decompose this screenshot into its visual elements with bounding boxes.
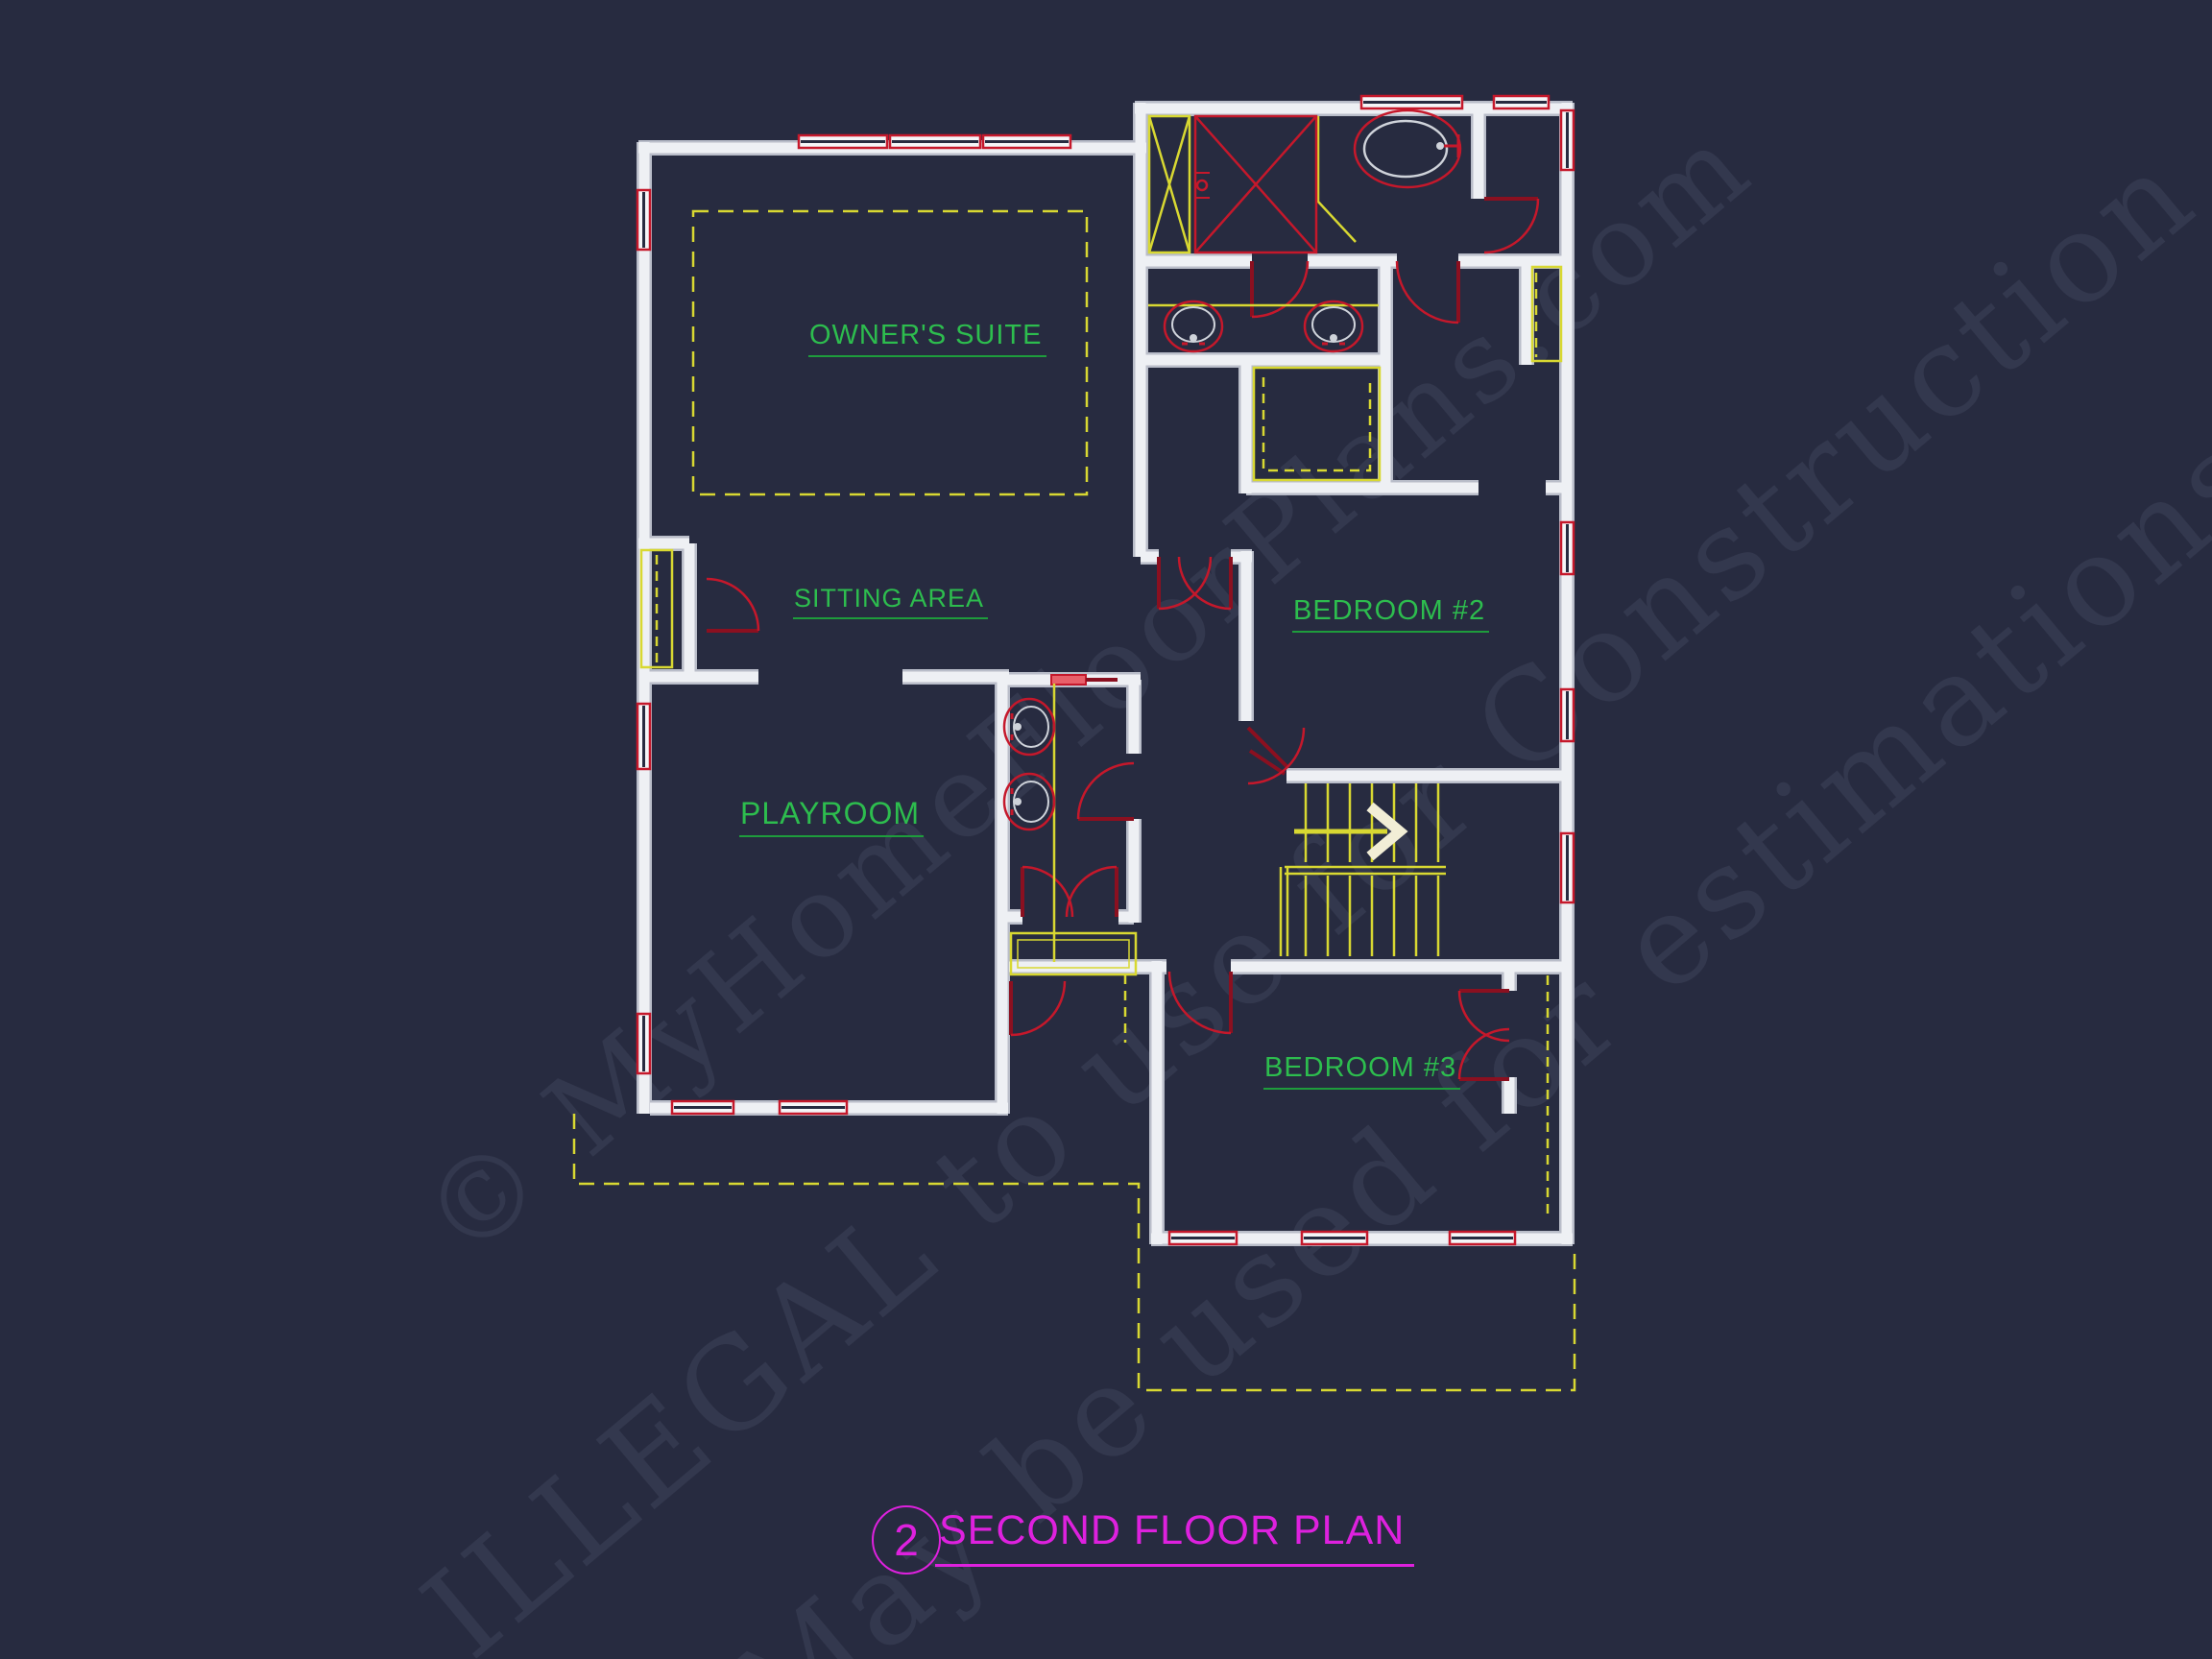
door-arc-water-closet xyxy=(1484,199,1538,252)
wic-shelf-dashed xyxy=(1263,377,1370,470)
floorplan-drawing xyxy=(0,0,2212,1659)
room-label-bedroom-2: BEDROOM #2 xyxy=(1292,595,1489,633)
bathtub-icon xyxy=(1355,110,1461,187)
bath-sink-icon xyxy=(1004,774,1054,829)
vanity-sink-icon xyxy=(1165,301,1222,351)
sheet-number: 2 xyxy=(894,1514,919,1566)
walk-in-closet-box xyxy=(1254,368,1380,480)
sheet-title-block: 2 SECOND FLOOR PLAN xyxy=(872,1505,1414,1575)
floorplan-sheet: © MyHomeFloorPlans.com ILLEGAL to use fo… xyxy=(0,0,2212,1659)
room-label-sitting-area: SITTING AREA xyxy=(793,584,988,619)
window-icon xyxy=(1561,522,1574,574)
window-icon xyxy=(1450,1232,1515,1244)
window-icon xyxy=(1302,1232,1367,1244)
door-arc-bedroom3 xyxy=(1169,972,1231,1033)
dashed-outline-layer xyxy=(574,211,1575,1390)
window-icon xyxy=(780,1101,847,1114)
stairs xyxy=(1281,783,1446,956)
window-icon xyxy=(672,1101,733,1114)
window-icon xyxy=(1561,833,1574,902)
door-arc-sitting-closet xyxy=(707,579,758,631)
window-icon xyxy=(1561,110,1574,170)
sheet-number-circle: 2 xyxy=(872,1505,941,1575)
door-arc-bedroom3-closet-bottom xyxy=(1459,1029,1509,1079)
window-icon xyxy=(637,704,650,769)
stair-treads-lower xyxy=(1306,876,1438,956)
window-icon xyxy=(890,135,980,148)
sheet-title: SECOND FLOOR PLAN xyxy=(935,1507,1414,1567)
door-arc-hall-bath xyxy=(1078,763,1134,819)
bath-sink-icon xyxy=(1004,699,1054,755)
door-arc-laundry-left xyxy=(1022,867,1072,917)
room-label-owners-suite: OWNER'S SUITE xyxy=(808,320,1046,357)
door-arc-vanity xyxy=(1252,261,1308,317)
window-icon xyxy=(637,190,650,250)
room-label-playroom: PLAYROOM xyxy=(739,796,924,837)
window-icon xyxy=(799,135,887,148)
shower-glass-corner xyxy=(1318,116,1356,242)
window-icon xyxy=(983,135,1070,148)
roof-overhang-dashed xyxy=(574,1114,1575,1390)
linen-x-cabinet xyxy=(1149,116,1190,252)
door-arc-bedroom3-closet-top xyxy=(1459,991,1509,1041)
casework xyxy=(641,116,1561,974)
door-arc-bath-hall xyxy=(1397,261,1458,323)
window-icon xyxy=(1494,96,1549,108)
window-icon xyxy=(1169,1232,1237,1244)
window-icon xyxy=(1361,96,1462,108)
window-icon xyxy=(637,1014,650,1073)
door-arc-laundry-right xyxy=(1067,867,1117,917)
room-label-bedroom-3: BEDROOM #3 xyxy=(1263,1052,1460,1090)
window-icon xyxy=(1561,689,1574,741)
door-arc-linen xyxy=(1011,981,1065,1035)
vanity-sink-icon xyxy=(1305,301,1362,351)
shower-icon xyxy=(1195,116,1316,252)
